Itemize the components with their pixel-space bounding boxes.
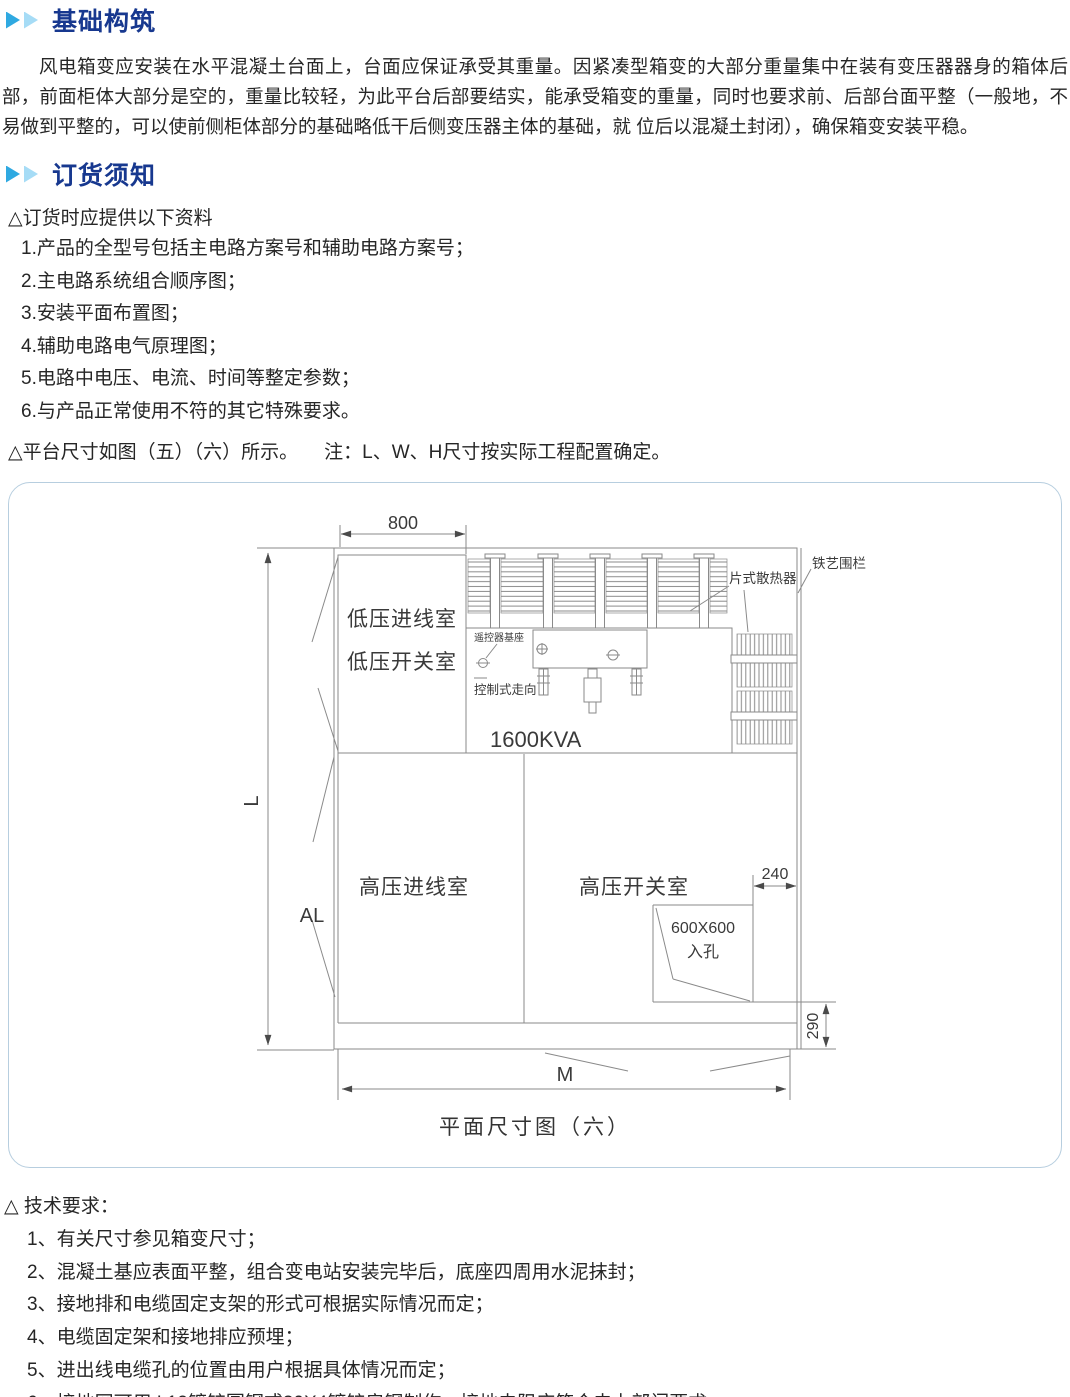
side-radiator (731, 634, 797, 744)
list-item: 2、混凝土基应表面平整，组合变电站安装完毕后，底座四周用水泥抹封； (27, 1257, 726, 1290)
iron-fence-label: 铁艺围栏 (812, 556, 866, 571)
list-item: 1、有关尺寸参见箱变尺寸； (27, 1224, 726, 1257)
top-radiator (468, 554, 727, 628)
list-item: 6、接地网可用Φ12镀锌圆钢或30X4镀锌扁钢制作，接地电阻应符合电力部门要求。 (27, 1388, 726, 1397)
figure-panel: 800 L AL M 240 290 低压进线室 低压开关室 高压进线室 高压开… (8, 482, 1062, 1168)
section-arrow-icon (24, 12, 38, 29)
list-item: 3、接地排和电缆固定支架的形式可根据实际情况而定； (27, 1289, 726, 1322)
figure-caption: 平面尺寸图（六） (9, 1111, 1061, 1141)
base-slope-lines (545, 1053, 790, 1071)
manhole-name-label: 入孔 (687, 943, 719, 961)
list-item: 1.产品的全型号包括主电路方案号和辅助电路方案号； (21, 233, 474, 266)
foundation-title: 基础构筑 (52, 2, 156, 38)
remote-base-symbol (476, 644, 497, 668)
room-lv-switch-label: 低压开关室 (347, 651, 457, 674)
control-route-label: 控制式走向 (474, 682, 537, 697)
list-item: 5.电路中电压、电流、时间等整定参数； (21, 363, 474, 396)
ordering-title: 订货须知 (52, 156, 156, 192)
ordering-intro: △订货时应提供以下资料 (8, 203, 213, 230)
plan-drawing: 800 L AL M 240 290 低压进线室 低压开关室 高压进线室 高压开… (9, 483, 1061, 1167)
room-hv-switch-label: 高压开关室 (579, 876, 689, 899)
technical-title: △ 技术要求： (4, 1191, 119, 1218)
list-item: 4、电缆固定架和接地排应预埋； (27, 1322, 726, 1355)
dim-800-label: 800 (388, 513, 418, 533)
ordering-section-header: 订货须知 (6, 156, 156, 192)
section-arrow-icon (6, 166, 20, 183)
plate-radiator-label: 片式散热器 (729, 571, 797, 586)
list-item: 5、进出线电缆孔的位置由用户根据具体情况而定； (27, 1355, 726, 1388)
dimension-L (257, 548, 334, 1050)
foundation-paragraph: 风电箱变应安装在水平混凝土台面上，台面应保证承受其重量。因紧凑型箱变的大部分重量… (0, 52, 1070, 142)
transformer-rating-label: 1600KVA (490, 727, 582, 752)
platform-note-remark: 注：L、W、H尺寸按实际工程配置确定。 (324, 442, 670, 463)
document-page: 基础构筑 风电箱变应安装在水平混凝土台面上，台面应保证承受其重量。因紧凑型箱变的… (0, 0, 1070, 1397)
remote-base-label: 遥控器基座 (474, 631, 524, 644)
list-item: 6.与产品正常使用不符的其它特殊要求。 (21, 396, 474, 429)
list-item: 2.主电路系统组合顺序图； (21, 266, 474, 299)
dim-M-label: M (557, 1064, 574, 1086)
dim-AL-label: AL (300, 905, 324, 927)
dim-290-label: 290 (805, 1013, 822, 1040)
platform-note: △平台尺寸如图（五）（六）所示。 (8, 442, 298, 463)
section-arrow-icon (24, 166, 38, 183)
room-lv-incoming-label: 低压进线室 (347, 608, 457, 631)
dim-240-label: 240 (762, 866, 789, 883)
section-arrow-icon (6, 12, 20, 29)
list-item: 4.辅助电路电气原理图； (21, 331, 474, 364)
dim-L-label: L (241, 795, 263, 806)
platform-note-line: △平台尺寸如图（五）（六）所示。注：L、W、H尺寸按实际工程配置确定。 (8, 437, 670, 464)
foundation-section-header: 基础构筑 (6, 2, 156, 38)
transformer-body (533, 630, 647, 713)
fence-leader-line (798, 569, 811, 593)
ordering-list: 1.产品的全型号包括主电路方案号和辅助电路方案号； 2.主电路系统组合顺序图； … (21, 233, 474, 429)
room-hv-incoming-label: 高压进线室 (359, 876, 469, 899)
list-item: 3.安装平面布置图； (21, 298, 474, 331)
technical-list: 1、有关尺寸参见箱变尺寸； 2、混凝土基应表面平整，组合变电站安装完毕后，底座四… (27, 1224, 726, 1397)
manhole-size-label: 600X600 (671, 920, 735, 937)
